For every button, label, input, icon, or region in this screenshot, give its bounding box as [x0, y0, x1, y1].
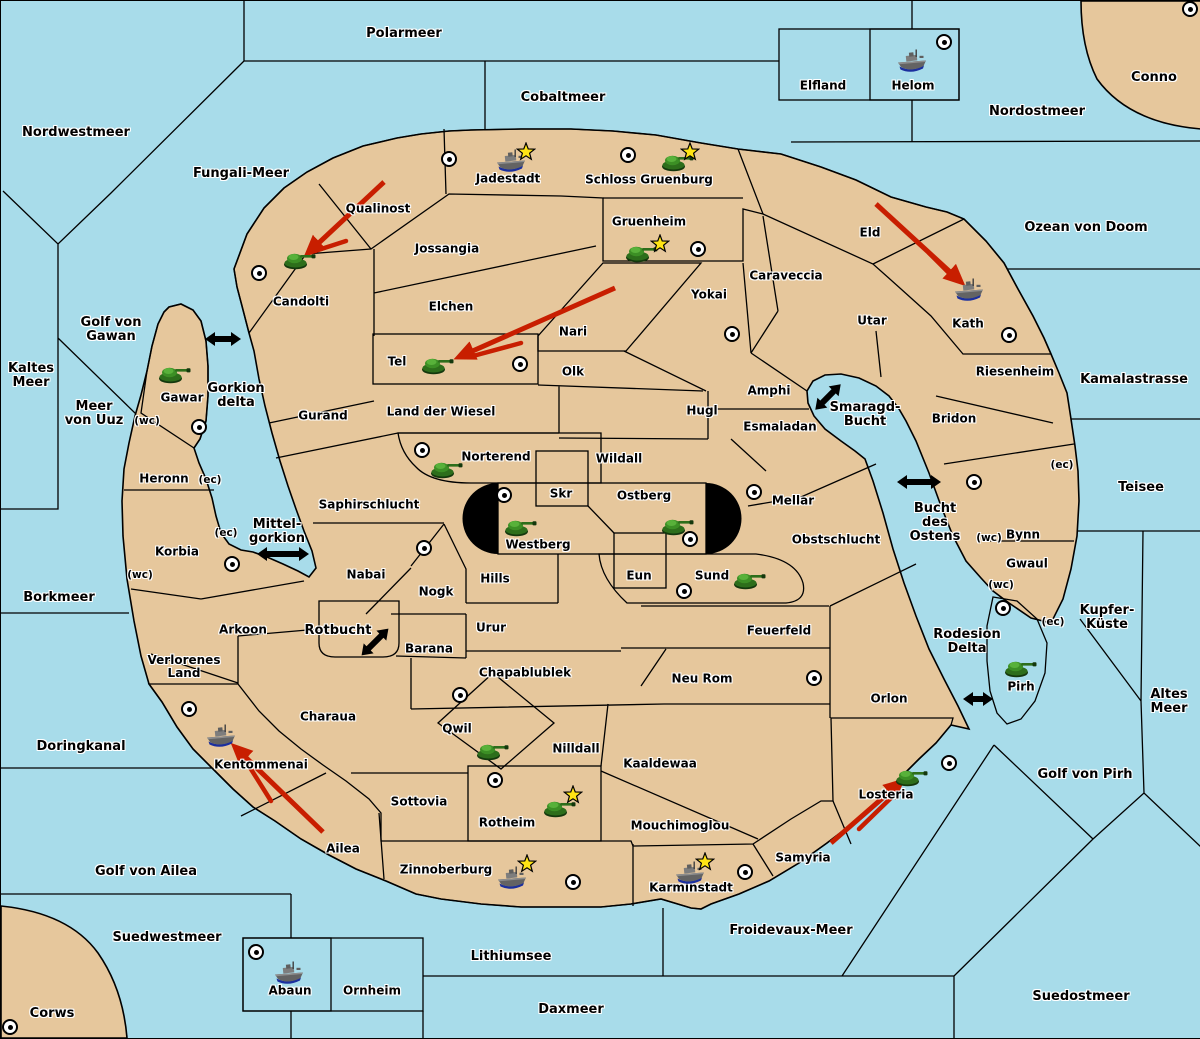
territory-label-caraveccia[interactable]: Caraveccia	[749, 270, 822, 283]
capital-icon-mellar	[746, 484, 762, 500]
ship-icon-kath[interactable]	[952, 278, 986, 302]
sea-label-kupfer-k-ste[interactable]: Kupfer- Küste	[1080, 604, 1135, 632]
territory-label-urur[interactable]: Urur	[476, 622, 506, 635]
territory-label-heronn[interactable]: Heronn	[139, 473, 188, 486]
sea-label-meer-von-uuz[interactable]: Meer von Uuz	[65, 400, 124, 428]
capital-icon-jadestadt	[441, 151, 457, 167]
sea-label-cobaltmeer[interactable]: Cobaltmeer	[521, 91, 606, 105]
sea-label-suedostmeer[interactable]: Suedostmeer	[1032, 990, 1129, 1004]
tank-icon-ostberg[interactable]	[660, 514, 694, 536]
territory-label-gawar[interactable]: Gawar	[160, 392, 203, 405]
territory-label-mouchimoglou[interactable]: Mouchimoglou	[631, 820, 730, 833]
sea-label-ozean-von-doom[interactable]: Ozean von Doom	[1024, 221, 1147, 235]
territory-label-korbia[interactable]: Korbia	[155, 546, 199, 559]
territory-label-wildall[interactable]: Wildall	[596, 453, 642, 466]
sea-label-froidevaux-meer[interactable]: Froidevaux-Meer	[729, 924, 852, 938]
star-icon-jadestadt	[516, 142, 536, 162]
capital-icon-conno	[1182, 1, 1198, 17]
star-icon-schloss-gruenburg	[680, 142, 700, 162]
port-marker-ec: (ec)	[1042, 616, 1065, 628]
territory-label-schloss-gruenburg[interactable]: Schloss Gruenburg	[585, 174, 713, 187]
territory-label-mellar[interactable]: Mellar	[772, 495, 814, 508]
capital-icon-tel	[512, 356, 528, 372]
territory-label-zinnoberburg[interactable]: Zinnoberburg	[400, 864, 492, 877]
territory-label-jadestadt[interactable]: Jadestadt	[476, 173, 541, 186]
territory-label-utar[interactable]: Utar	[857, 315, 887, 328]
sea-label-lithiumsee[interactable]: Lithiumsee	[471, 950, 552, 964]
tank-icon-sund[interactable]	[732, 568, 766, 590]
territory-label-ailea[interactable]: Ailea	[326, 843, 360, 856]
capital-icon-zinnoberburg	[565, 874, 581, 890]
territory-label-gwaul[interactable]: Gwaul	[1006, 558, 1048, 571]
ship-icon-helom[interactable]	[895, 49, 929, 73]
territory-label-bridon[interactable]: Bridon	[932, 413, 977, 426]
sea-label-nordwestmeer[interactable]: Nordwestmeer	[22, 126, 130, 140]
ship-icon-abaun[interactable]	[272, 961, 306, 985]
territory-label-qwil[interactable]: Qwil	[442, 723, 472, 736]
territory-label-land-der-wiesel[interactable]: Land der Wiesel	[387, 406, 496, 419]
star-icon-rotheim	[563, 785, 583, 805]
territory-label-sottovia[interactable]: Sottovia	[391, 796, 448, 809]
sea-label-polarmeer[interactable]: Polarmeer	[366, 27, 442, 41]
territory-label-helom[interactable]: Helom	[891, 80, 934, 93]
territory-label-yokai[interactable]: Yokai	[691, 289, 727, 302]
sea-label-kaltes-meer[interactable]: Kaltes Meer	[8, 362, 54, 390]
territory-label-tel[interactable]: Tel	[388, 356, 407, 369]
territory-label-kaaldewaa[interactable]: Kaaldewaa	[623, 758, 697, 771]
territory-label-olk[interactable]: Olk	[562, 366, 584, 379]
territory-label-pirh[interactable]: Pirh	[1007, 681, 1034, 694]
territory-label-rotheim[interactable]: Rotheim	[479, 817, 536, 830]
sea-label-corws[interactable]: Corws	[30, 1007, 75, 1021]
capital-icon-gawar	[191, 419, 207, 435]
territory-label-ostberg[interactable]: Ostberg	[617, 490, 671, 503]
port-marker-ec: (ec)	[1051, 459, 1074, 471]
territory-label-arkoon[interactable]: Arkoon	[219, 624, 267, 637]
sea-label-golf-von-pirh[interactable]: Golf von Pirh	[1037, 768, 1132, 782]
territory-label-bynn[interactable]: Bynn	[1006, 529, 1040, 542]
territory-label-samyria[interactable]: Samyria	[775, 852, 830, 865]
port-marker-wc: (wc)	[127, 569, 153, 581]
star-icon-gruenheim	[650, 234, 670, 254]
capital-icon-westberg	[496, 487, 512, 503]
territory-label-eld[interactable]: Eld	[860, 227, 881, 240]
capital-icon-korbia	[224, 556, 240, 572]
territory-label-elfland[interactable]: Elfland	[800, 80, 846, 93]
territory-label-nilldall[interactable]: Nilldall	[552, 743, 599, 756]
capital-icon-losteria	[941, 755, 957, 771]
territory-label-obstschlucht[interactable]: Obstschlucht	[792, 534, 881, 547]
sea-label-teisee[interactable]: Teisee	[1118, 481, 1164, 495]
territory-label-losteria[interactable]: Losteria	[858, 789, 913, 802]
territory-label-gurand[interactable]: Gurand	[298, 410, 348, 423]
territory-label-gruenheim[interactable]: Gruenheim	[612, 216, 686, 229]
sea-label-altes-meer[interactable]: Altes Meer	[1150, 688, 1187, 716]
star-icon-zinnoberburg	[517, 854, 537, 874]
capital-icon-sund	[676, 583, 692, 599]
capital-icon-kath	[1001, 327, 1017, 343]
capital-icon-helom	[936, 34, 952, 50]
capital-icon-pirh	[995, 600, 1011, 616]
tank-icon-candolti[interactable]	[282, 248, 316, 270]
territory-label-jossangia[interactable]: Jossangia	[415, 243, 479, 256]
territory-label-eun[interactable]: Eun	[626, 570, 651, 583]
port-marker-wc: (wc)	[988, 579, 1014, 591]
capital-icon-karminstadt	[737, 864, 753, 880]
sea-label-fungali-meer[interactable]: Fungali-Meer	[193, 167, 289, 181]
territory-label-sund[interactable]: Sund	[695, 570, 729, 583]
capital-icon-nabai	[416, 540, 432, 556]
tank-icon-norterend[interactable]	[429, 457, 463, 479]
tank-icon-qwil[interactable]	[475, 739, 509, 761]
territory-label-chapablublek[interactable]: Chapablublek	[479, 667, 571, 680]
star-icon-karminstadt	[695, 852, 715, 872]
territory-label-riesenheim[interactable]: Riesenheim	[976, 366, 1055, 379]
sea-label-gorkion-delta[interactable]: Gorkion delta	[207, 382, 264, 410]
capital-icon-kentommenai	[181, 701, 197, 717]
game-map: PolarmeerNordwestmeerFungali-MeerCobaltm…	[0, 0, 1200, 1039]
territory-label-hugl[interactable]: Hugl	[686, 405, 717, 418]
territory-label-nari[interactable]: Nari	[559, 326, 587, 339]
territory-label-qualinost[interactable]: Qualinost	[346, 203, 411, 216]
ship-icon-kentommenai[interactable]	[204, 724, 238, 748]
territory-label-neu-rom[interactable]: Neu Rom	[672, 673, 733, 686]
capital-icon-abaun	[248, 944, 264, 960]
territory-label-elchen[interactable]: Elchen	[429, 301, 474, 314]
territory-label-feuerfeld[interactable]: Feuerfeld	[747, 625, 812, 638]
port-marker-wc: (wc)	[976, 532, 1002, 544]
capital-icon-norterend	[414, 442, 430, 458]
territory-label-norterend[interactable]: Norterend	[461, 451, 530, 464]
sea-label-conno[interactable]: Conno	[1131, 71, 1177, 85]
territory-label-ornheim[interactable]: Ornheim	[343, 985, 401, 998]
territory-label-kath[interactable]: Kath	[952, 318, 984, 331]
territory-label-westberg[interactable]: Westberg	[505, 539, 570, 552]
territory-label-hills[interactable]: Hills	[480, 573, 510, 586]
capital-icon-schloss-gruenburg	[620, 147, 636, 163]
tank-icon-westberg[interactable]	[503, 515, 537, 537]
sea-label-smaragd-bucht[interactable]: Smaragd- Bucht	[830, 401, 901, 429]
capital-icon-rotheim	[487, 772, 503, 788]
territory-label-esmaladan[interactable]: Esmaladan	[743, 421, 816, 434]
sea-label-rotbucht[interactable]: Rotbucht	[305, 624, 372, 638]
capital-icon-qwil	[452, 687, 468, 703]
sea-label-golf-von-ailea[interactable]: Golf von Ailea	[95, 865, 197, 879]
sea-label-nordostmeer[interactable]: Nordostmeer	[989, 105, 1085, 119]
territory-label-nabai[interactable]: Nabai	[347, 569, 386, 582]
tank-icon-tel[interactable]	[420, 353, 454, 375]
territory-label-barana[interactable]: Barana	[405, 643, 453, 656]
sea-label-daxmeer[interactable]: Daxmeer	[538, 1003, 604, 1017]
territory-label-kentommenai[interactable]: Kentommenai	[214, 759, 308, 772]
territory-label-amphi[interactable]: Amphi	[747, 385, 790, 398]
territory-label-charaua[interactable]: Charaua	[300, 711, 356, 724]
capital-icon-corws	[2, 1019, 18, 1035]
sea-label-rodesion-delta[interactable]: Rodesion Delta	[933, 628, 1000, 656]
capital-icon-bynn	[966, 474, 982, 490]
sea-label-kamalastrasse[interactable]: Kamalastrasse	[1080, 373, 1188, 387]
tank-icon-pirh[interactable]	[1003, 656, 1037, 678]
territory-label-nogk[interactable]: Nogk	[419, 586, 454, 599]
capital-icon-neu-rom	[806, 670, 822, 686]
tank-icon-gawar[interactable]	[157, 362, 191, 384]
capital-icon-gruenheim	[690, 241, 706, 257]
tank-icon-losteria[interactable]	[894, 765, 928, 787]
sea-label-mittel-gorkion[interactable]: Mittel- gorkion	[249, 518, 305, 546]
territory-label-orlon[interactable]: Orlon	[870, 693, 907, 706]
sea-label-golf-von-gawan[interactable]: Golf von Gawan	[81, 316, 142, 344]
territory-label-abaun[interactable]: Abaun	[268, 985, 311, 998]
capital-icon-candolti	[251, 265, 267, 281]
sea-label-bucht-des-ostens[interactable]: Bucht des Ostens	[910, 502, 961, 544]
sea-label-borkmeer[interactable]: Borkmeer	[23, 591, 95, 605]
territory-label-candolti[interactable]: Candolti	[273, 296, 329, 309]
sea-label-suedwestmeer[interactable]: Suedwestmeer	[112, 931, 221, 945]
capital-icon-yokai	[724, 326, 740, 342]
port-marker-wc: (wc)	[134, 415, 160, 427]
sea-label-doringkanal[interactable]: Doringkanal	[36, 740, 125, 754]
territory-label-saphirschlucht[interactable]: Saphirschlucht	[319, 499, 420, 512]
territory-label-skr[interactable]: Skr	[550, 488, 573, 501]
port-marker-ec: (ec)	[215, 527, 238, 539]
territory-label-verlorenes-land[interactable]: Verlorenes Land	[148, 654, 221, 680]
port-marker-ec: (ec)	[199, 474, 222, 486]
